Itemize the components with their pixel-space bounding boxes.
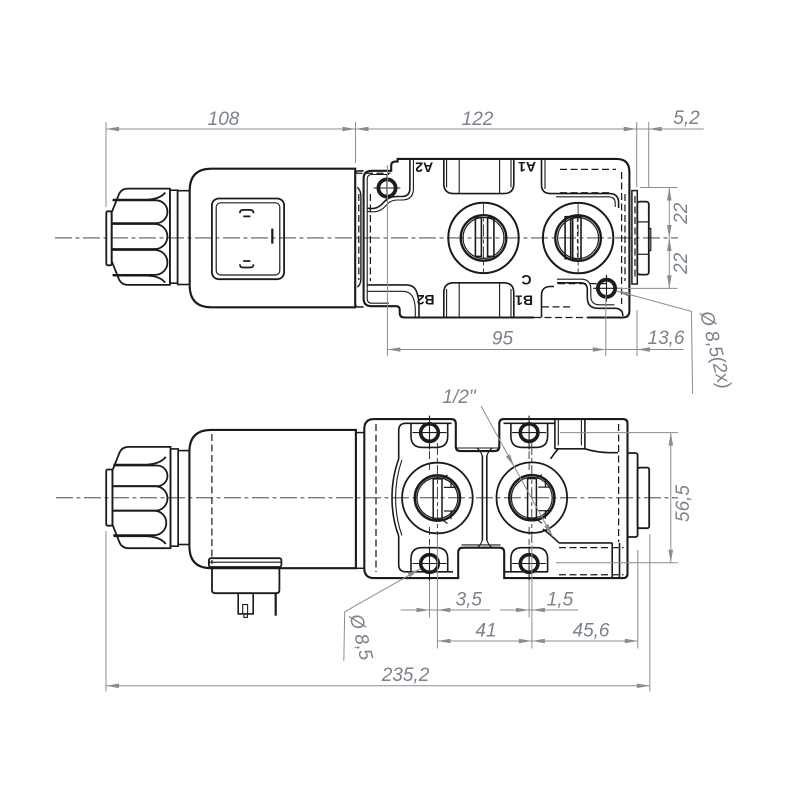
svg-text:3,5: 3,5 — [456, 590, 483, 611]
svg-text:22: 22 — [671, 202, 692, 225]
svg-text:108: 108 — [208, 109, 240, 130]
svg-text:C: C — [521, 272, 531, 288]
svg-text:5,2: 5,2 — [673, 108, 700, 129]
svg-text:56,5: 56,5 — [673, 485, 694, 522]
svg-text:22: 22 — [671, 252, 692, 275]
svg-text:41: 41 — [475, 621, 496, 642]
svg-text:235,2: 235,2 — [381, 665, 430, 686]
svg-text:B2: B2 — [416, 292, 434, 308]
svg-text:B1: B1 — [515, 293, 533, 309]
svg-text:1/2": 1/2" — [442, 387, 476, 408]
svg-text:45,6: 45,6 — [573, 621, 610, 642]
svg-text:13,6: 13,6 — [648, 328, 685, 349]
svg-text:A1: A1 — [518, 159, 536, 175]
svg-text:122: 122 — [462, 109, 494, 130]
svg-text:A2: A2 — [415, 159, 433, 175]
svg-text:95: 95 — [492, 329, 514, 350]
svg-text:1,5: 1,5 — [547, 590, 574, 611]
